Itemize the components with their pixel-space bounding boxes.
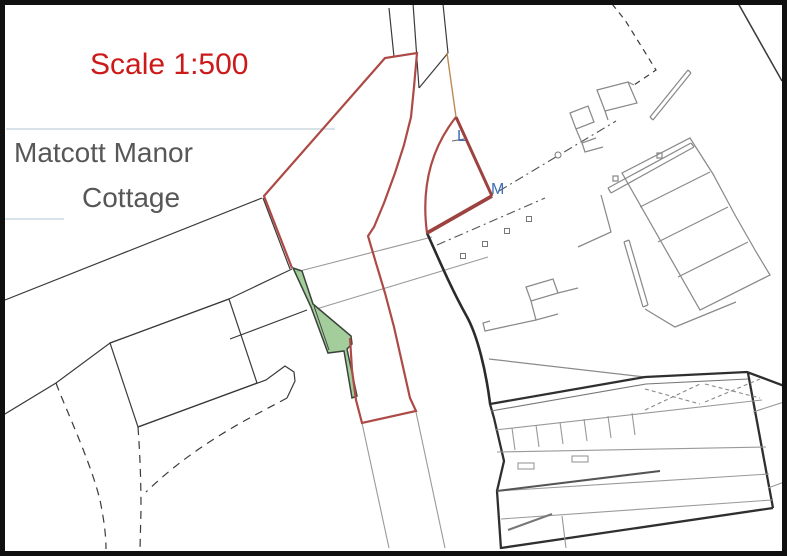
marker-m: M [491, 181, 504, 198]
marker-l: L [457, 128, 466, 145]
scale-label: Scale 1:500 [90, 48, 248, 81]
site-plan-page: Scale 1:500 Matcott Manor Cottage L M [0, 0, 787, 556]
map-background [0, 0, 787, 556]
place-name-line1: Matcott Manor [14, 137, 193, 168]
post-circle [555, 152, 561, 158]
place-name-line2: Cottage [82, 182, 180, 213]
site-plan-canvas: Scale 1:500 Matcott Manor Cottage L M [0, 0, 787, 556]
